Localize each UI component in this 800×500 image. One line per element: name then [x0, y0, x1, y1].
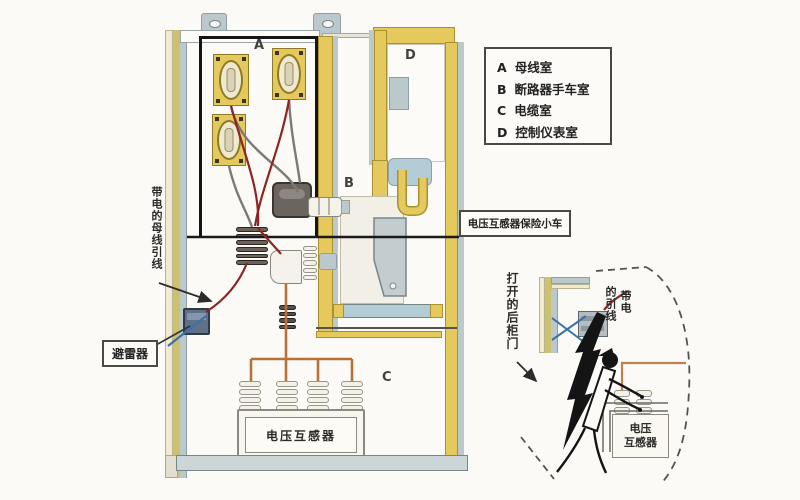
cart-wheel-left — [333, 304, 344, 318]
arrester-callout: 避雷器 — [102, 340, 158, 367]
busbar-bushing-2 — [272, 48, 306, 100]
compartment-a-letter: A — [254, 38, 264, 53]
arrester-device — [183, 308, 210, 335]
legend-row-c: C 电缆室 — [497, 100, 610, 122]
compartment-d-letter: D — [405, 48, 416, 63]
lug-hole-icon — [322, 20, 334, 28]
legend-label: 母线室 — [515, 57, 553, 79]
legend-label: 控制仪表室 — [515, 122, 578, 144]
divider-gray-strip — [333, 36, 338, 336]
vt-bushing-3 — [307, 381, 329, 411]
breaker-ribbed-cap — [303, 246, 317, 280]
vt-bushing-2 — [276, 381, 298, 411]
left-wall-outer — [165, 30, 173, 478]
legend-label: 断路器手车室 — [515, 79, 590, 101]
vt-main-label: 电压互感器 — [266, 427, 336, 444]
right-wall-gray — [458, 42, 464, 458]
cabinet-base — [176, 455, 468, 471]
rear-door-callout: 打开的后柜门 — [504, 272, 521, 368]
cable-connector — [279, 305, 296, 329]
left-wall-mid — [173, 30, 180, 478]
vt-fuse-insulator — [236, 227, 268, 265]
live-lead-callout-col2: 的引线 — [602, 286, 618, 332]
inset-vt-bushing-2 — [636, 390, 652, 414]
compartment-b-letter: B — [344, 176, 354, 191]
legend-label: 电缆室 — [514, 100, 552, 122]
breaker-cylinder-tip — [341, 200, 350, 214]
vt-bushing-1 — [239, 381, 261, 411]
legend-row-b: B 断路器手车室 — [497, 79, 610, 101]
legend-row-a: A 母线室 — [497, 57, 610, 79]
b-floor-line — [316, 327, 457, 329]
left-wall-inner — [180, 30, 187, 478]
b-floor-yellow — [316, 331, 442, 338]
busbar-bushing-3 — [212, 114, 246, 166]
inset-vt-label-line1: 电压 — [630, 422, 652, 436]
inset-top-plate — [551, 277, 590, 284]
legend-key: A — [497, 57, 507, 79]
inset-top-plate2 — [551, 284, 590, 289]
busbar-bushing-1 — [213, 54, 249, 106]
legend-key: D — [497, 122, 507, 144]
divider-yellow-strip — [318, 36, 333, 336]
legend-key: B — [497, 79, 507, 101]
switchgear-diagram: 电压互感器 电压 互感器 — [0, 0, 800, 500]
legend-box: A 母线室 B 断路器手车室 C 电缆室 D 控制仪表室 — [484, 47, 612, 145]
breaker-pole-lower — [270, 250, 302, 284]
compartment-c-letter: C — [382, 370, 392, 385]
inset-vt-label-line2: 互感器 — [624, 436, 657, 450]
legend-row-d: D 控制仪表室 — [497, 122, 610, 144]
breaker-pole-upper — [272, 182, 312, 218]
cart-wheel-right — [430, 304, 443, 318]
live-lead-callout-col1: 带电 — [617, 290, 633, 322]
legend-key: C — [497, 100, 506, 122]
busbar-lead-callout: 带电的母线引线 — [148, 186, 164, 298]
breaker-nut — [319, 253, 337, 270]
lug-hole-icon — [209, 20, 221, 28]
right-wall-yellow — [445, 42, 458, 458]
vt-bushing-4 — [341, 381, 363, 411]
cart-base-rail — [333, 304, 443, 318]
inset-vt-box: 电压 互感器 — [612, 414, 669, 458]
ct-blue-slab — [388, 158, 432, 186]
inset-vt-bushing-1 — [614, 390, 630, 414]
vt-box: 电压互感器 — [237, 409, 365, 461]
d-instrument-block — [389, 77, 409, 110]
inset-orange-wire — [622, 363, 686, 390]
breaker-cylinder — [308, 197, 342, 217]
vt-fuse-cart-callout: 电压互感器保险小车 — [459, 210, 571, 237]
